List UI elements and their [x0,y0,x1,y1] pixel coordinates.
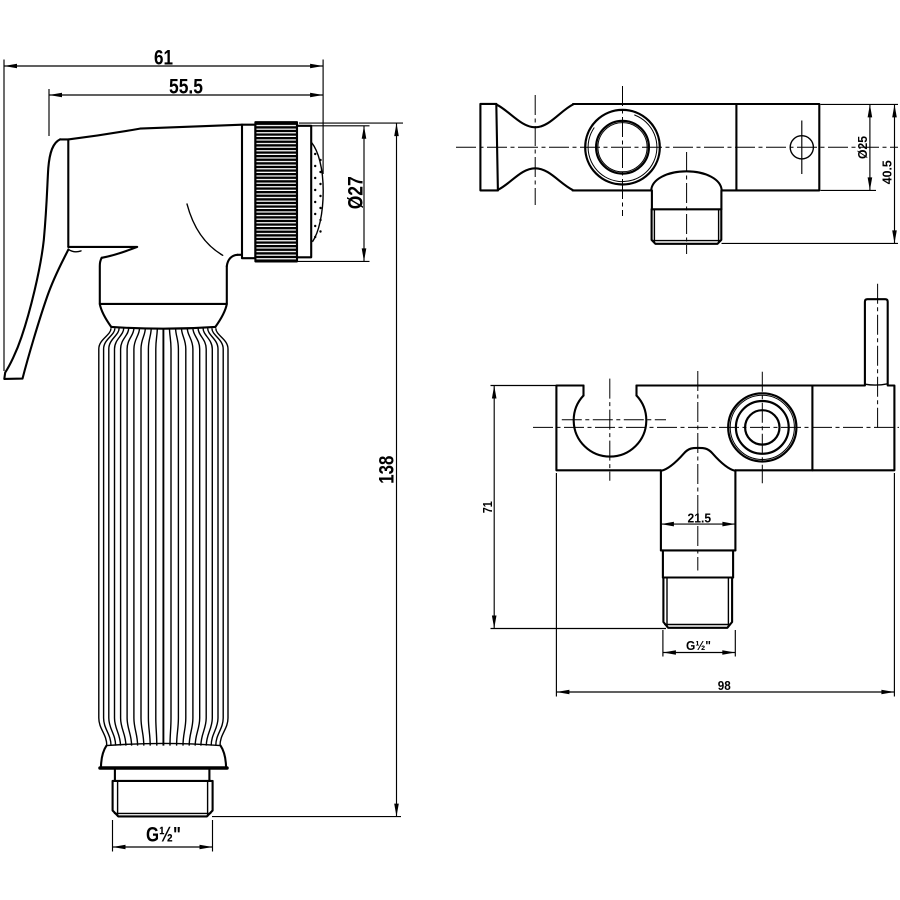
svg-text:61: 61 [154,46,173,70]
svg-text:Ø27: Ø27 [344,176,368,209]
svg-text:98: 98 [718,678,731,693]
svg-text:71: 71 [480,501,495,513]
svg-text:G½": G½" [146,822,181,846]
svg-text:Ø25: Ø25 [855,136,870,159]
svg-text:G½": G½" [686,638,711,653]
svg-text:21.5: 21.5 [688,510,712,525]
svg-text:40.5: 40.5 [880,160,895,184]
svg-text:55.5: 55.5 [169,74,203,98]
svg-text:138: 138 [375,456,399,484]
